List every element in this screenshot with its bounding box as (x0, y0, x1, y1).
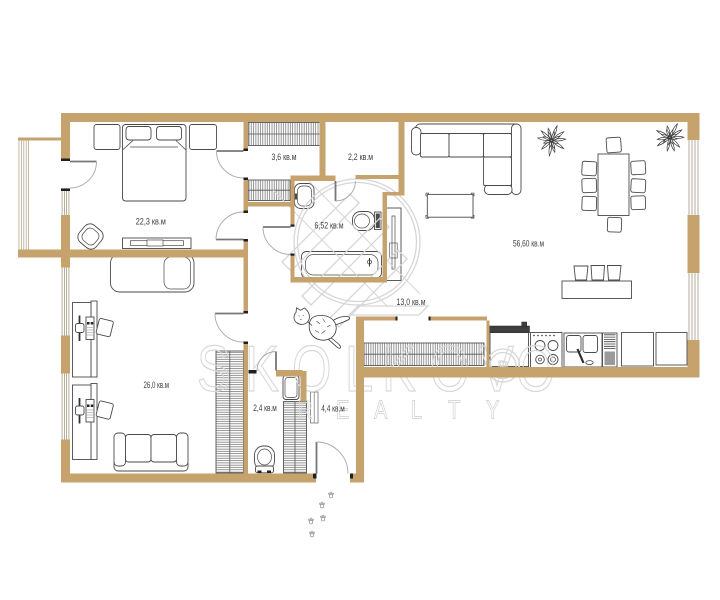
svg-text:26,0 кв.м: 26,0 кв.м (144, 380, 170, 390)
svg-text:L: L (411, 395, 422, 424)
svg-text:56,60 кв.м: 56,60 кв.м (513, 238, 544, 248)
svg-text:T: T (448, 395, 460, 424)
svg-text:13,0 кв.м: 13,0 кв.м (397, 297, 426, 307)
svg-text:4,4 кв.м: 4,4 кв.м (321, 404, 345, 414)
svg-text:3,6 кв.м: 3,6 кв.м (272, 152, 297, 162)
svg-text:S: S (197, 333, 231, 405)
svg-text:6,52 кв.м: 6,52 кв.м (315, 221, 344, 231)
svg-text:2,4 кв.м: 2,4 кв.м (253, 403, 276, 413)
svg-text:Y: Y (486, 395, 499, 424)
svg-text:A: A (374, 395, 388, 424)
svg-text:22,3 кв.м: 22,3 кв.м (136, 217, 166, 227)
svg-text:K: K (245, 333, 279, 405)
svg-text:2,2 кв.м: 2,2 кв.м (348, 152, 373, 162)
